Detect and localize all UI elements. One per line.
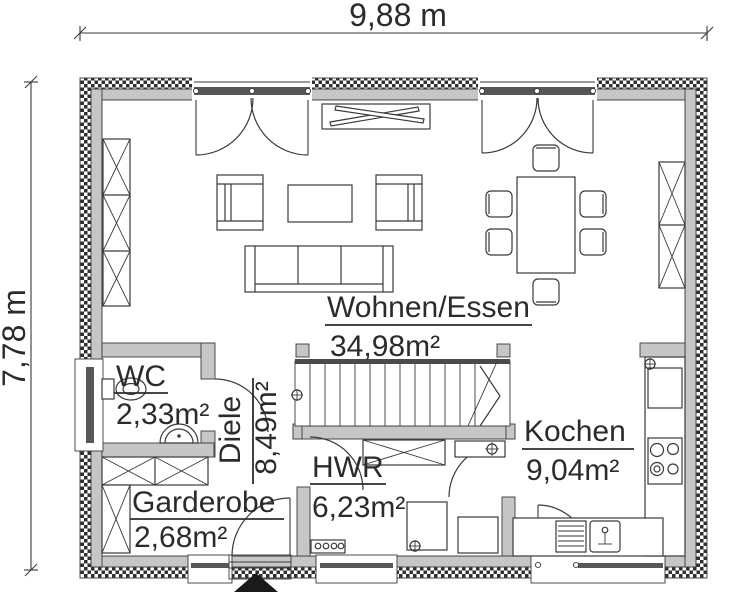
dining-table xyxy=(517,177,575,273)
dimension-width-label: 9,88 m xyxy=(349,0,447,33)
garderobe-wardrobe-horizontal xyxy=(102,457,208,485)
washing-machine xyxy=(407,502,447,552)
kitchen-sink-counter xyxy=(513,518,663,556)
room-area: 2,33m² xyxy=(116,398,209,431)
garderobe-wardrobe-vertical xyxy=(102,485,130,553)
sofa xyxy=(245,246,393,292)
room-name: Diele xyxy=(214,396,247,464)
hwr-window xyxy=(316,555,397,583)
hwr-appliance xyxy=(458,517,498,553)
garderobe-window xyxy=(188,555,232,583)
armchair-left xyxy=(217,175,263,230)
sideboard xyxy=(322,104,430,129)
floor-plan-page: 9,88 m 7,78 m xyxy=(0,0,750,609)
room-name: HWR xyxy=(312,451,384,484)
armchair-right xyxy=(376,175,422,230)
room-name: Garderobe xyxy=(132,486,275,519)
post-left xyxy=(296,344,309,357)
room-area: 6,23m² xyxy=(312,491,405,524)
radiator xyxy=(311,540,345,553)
coffee-table xyxy=(288,185,352,222)
room-area: 9,04m² xyxy=(526,454,619,487)
room-area: 2,68m² xyxy=(134,521,227,554)
wc-window xyxy=(75,359,103,451)
wardrobe-tall xyxy=(103,139,130,306)
room-name: Wohnen/Essen xyxy=(327,291,530,324)
post-right xyxy=(497,344,510,357)
dimension-width: 9,88 m xyxy=(74,0,713,41)
room-name: Kochen xyxy=(524,415,626,448)
dining-cabinet xyxy=(659,162,685,288)
room-name: WC xyxy=(116,360,166,393)
floor-plan-drawing: 9,88 m 7,78 m xyxy=(0,0,750,609)
dimension-height-label: 7,78 m xyxy=(0,289,32,387)
dimension-height: 7,78 m xyxy=(0,76,38,576)
room-area: 34,98m² xyxy=(330,330,440,363)
hwr-niche xyxy=(455,441,505,457)
room-area: 8,49m² xyxy=(250,381,283,474)
